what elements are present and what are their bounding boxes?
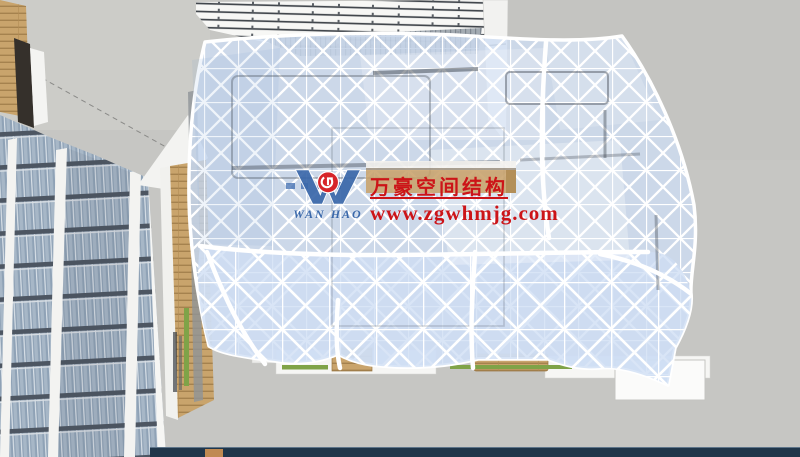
green-planting-strip <box>184 308 189 386</box>
render-canvas <box>0 0 800 457</box>
footer-wood-segment <box>205 449 223 457</box>
canopy <box>189 33 696 385</box>
under-glass-wood-band <box>366 161 516 193</box>
hedge <box>282 365 328 370</box>
render-viewport: WAN HAO 万豪空间结构 www.zgwhmjg.com <box>0 0 800 457</box>
hedge <box>450 365 572 369</box>
footer-strip <box>150 447 800 457</box>
